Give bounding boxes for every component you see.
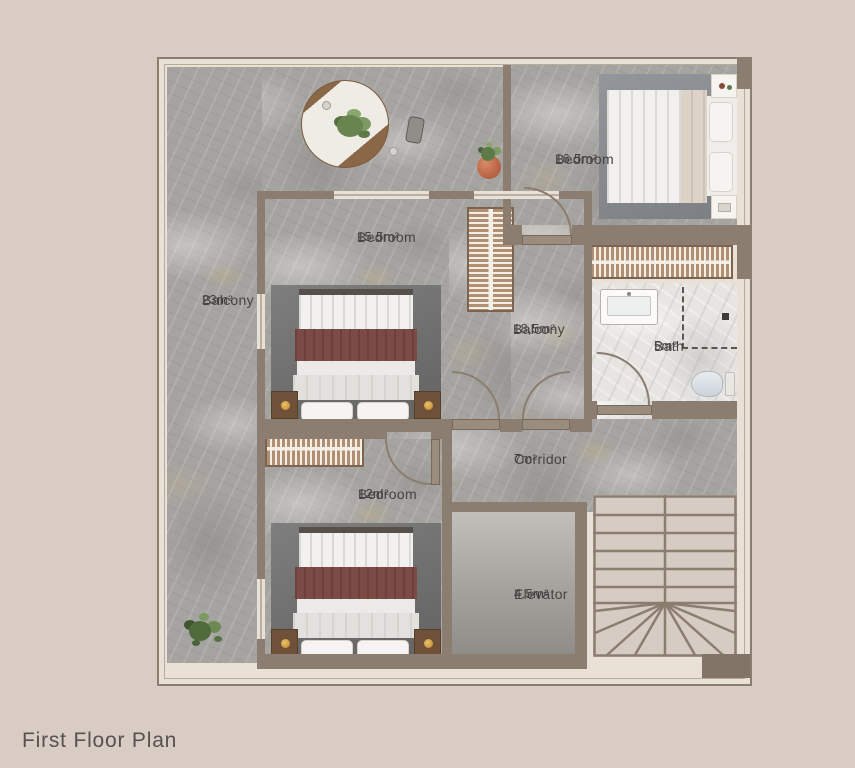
lamp-icon bbox=[424, 401, 433, 410]
room-area: 12m² bbox=[358, 485, 389, 503]
lamp-icon bbox=[281, 401, 290, 410]
page-title: First Floor Plan bbox=[22, 729, 177, 753]
door-leaf bbox=[452, 419, 500, 430]
room-area: 23m² bbox=[202, 291, 233, 309]
floor-plant-icon bbox=[189, 621, 211, 641]
wall bbox=[500, 419, 522, 432]
shower-drain-icon bbox=[722, 313, 729, 320]
cup-icon bbox=[389, 147, 398, 156]
wall bbox=[511, 225, 522, 245]
potted-plant-leaves-icon bbox=[481, 147, 495, 161]
door-leaf bbox=[522, 235, 572, 245]
wall bbox=[503, 65, 511, 245]
wall bbox=[575, 502, 587, 657]
wardrobe-icon bbox=[589, 245, 733, 279]
wall bbox=[737, 59, 750, 89]
room-area: 18,5m² bbox=[513, 320, 555, 338]
rug bbox=[271, 523, 441, 660]
double-bed-icon bbox=[607, 90, 707, 203]
wall bbox=[442, 432, 452, 657]
nightstand-icon bbox=[711, 195, 737, 219]
lamp-icon bbox=[424, 639, 433, 648]
staircase-icon bbox=[593, 495, 737, 657]
room-area: 5m² bbox=[654, 337, 677, 355]
nightstand-icon bbox=[414, 629, 441, 657]
wall bbox=[584, 198, 592, 419]
stair-landing-wall bbox=[702, 654, 750, 678]
window bbox=[334, 191, 429, 199]
nightstand-icon bbox=[414, 391, 441, 419]
table-plant-icon bbox=[337, 115, 363, 137]
room-area: 7m² bbox=[514, 450, 537, 468]
nightstand-icon bbox=[271, 629, 298, 657]
wall bbox=[257, 427, 387, 439]
door-leaf bbox=[597, 405, 652, 415]
nightstand-icon bbox=[711, 74, 737, 98]
wall bbox=[257, 654, 587, 669]
nightstand-icon bbox=[271, 391, 298, 419]
wall bbox=[652, 401, 737, 419]
rug bbox=[271, 285, 441, 422]
pillow-icon bbox=[709, 102, 733, 142]
decor-item bbox=[727, 85, 732, 90]
double-bed-icon bbox=[299, 289, 413, 422]
toilet-icon bbox=[691, 369, 737, 399]
pillow-icon bbox=[709, 152, 733, 192]
room-area: 4.5m² bbox=[514, 585, 549, 603]
floor-plan-page: Balcony 23m² Bedroom 16.5m² Bedroom 15.5… bbox=[0, 0, 855, 768]
wall bbox=[572, 225, 737, 245]
wall bbox=[737, 225, 750, 279]
wall bbox=[570, 419, 592, 432]
floor-balcony-left bbox=[167, 67, 262, 663]
wall bbox=[584, 401, 597, 419]
window bbox=[257, 294, 265, 349]
decor-item bbox=[719, 83, 725, 89]
elevator-cab bbox=[452, 512, 575, 654]
rug bbox=[599, 74, 737, 219]
cup-icon bbox=[322, 101, 331, 110]
floor-plan-canvas: Balcony 23m² Bedroom 16.5m² Bedroom 15.5… bbox=[157, 57, 752, 686]
door-leaf bbox=[431, 439, 440, 485]
double-bed-icon bbox=[299, 527, 413, 660]
window bbox=[257, 579, 265, 639]
room-area: 16.5m² bbox=[555, 150, 597, 168]
shower-icon bbox=[682, 287, 737, 349]
lamp-icon bbox=[281, 639, 290, 648]
door-leaf bbox=[522, 419, 570, 430]
decor-item bbox=[718, 203, 731, 212]
wall bbox=[442, 502, 587, 512]
sink-icon bbox=[600, 289, 658, 325]
room-area: 15.5m² bbox=[357, 228, 399, 246]
